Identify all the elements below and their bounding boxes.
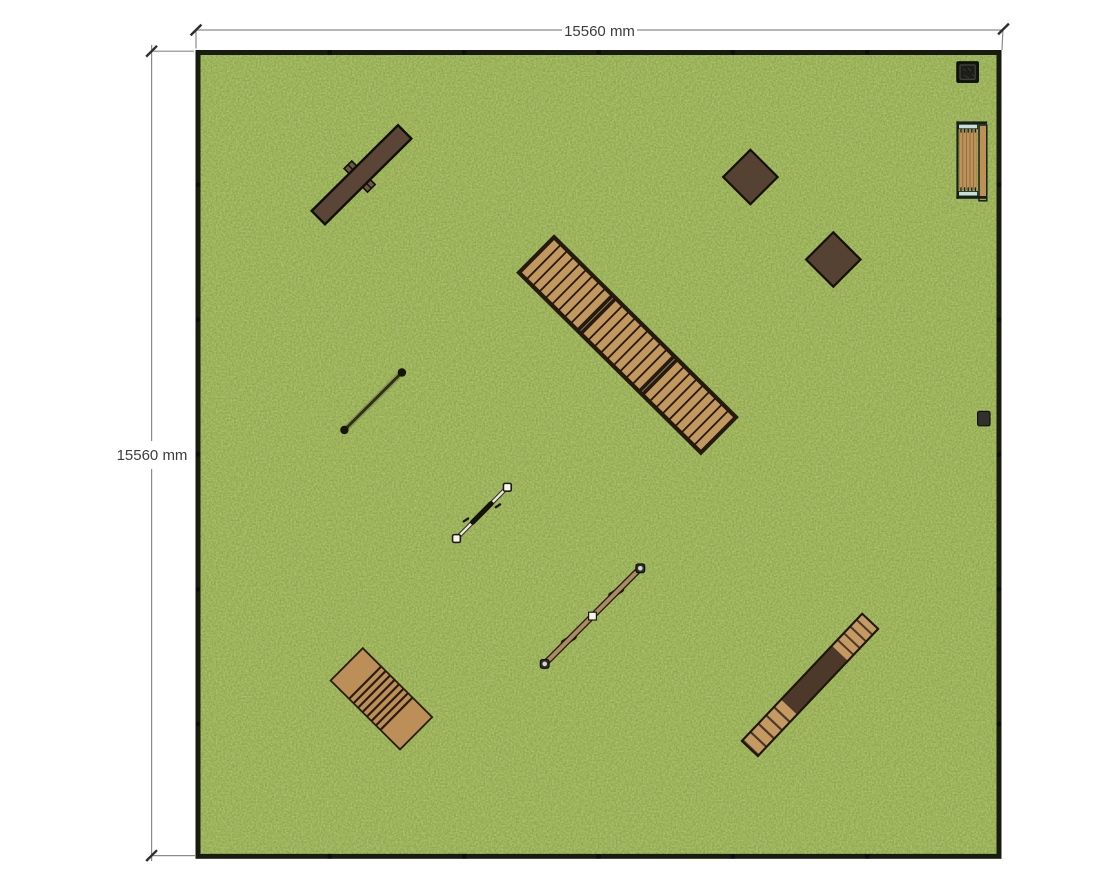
svg-text:15560 mm: 15560 mm: [117, 447, 188, 464]
svg-text:15560 mm: 15560 mm: [564, 23, 635, 40]
